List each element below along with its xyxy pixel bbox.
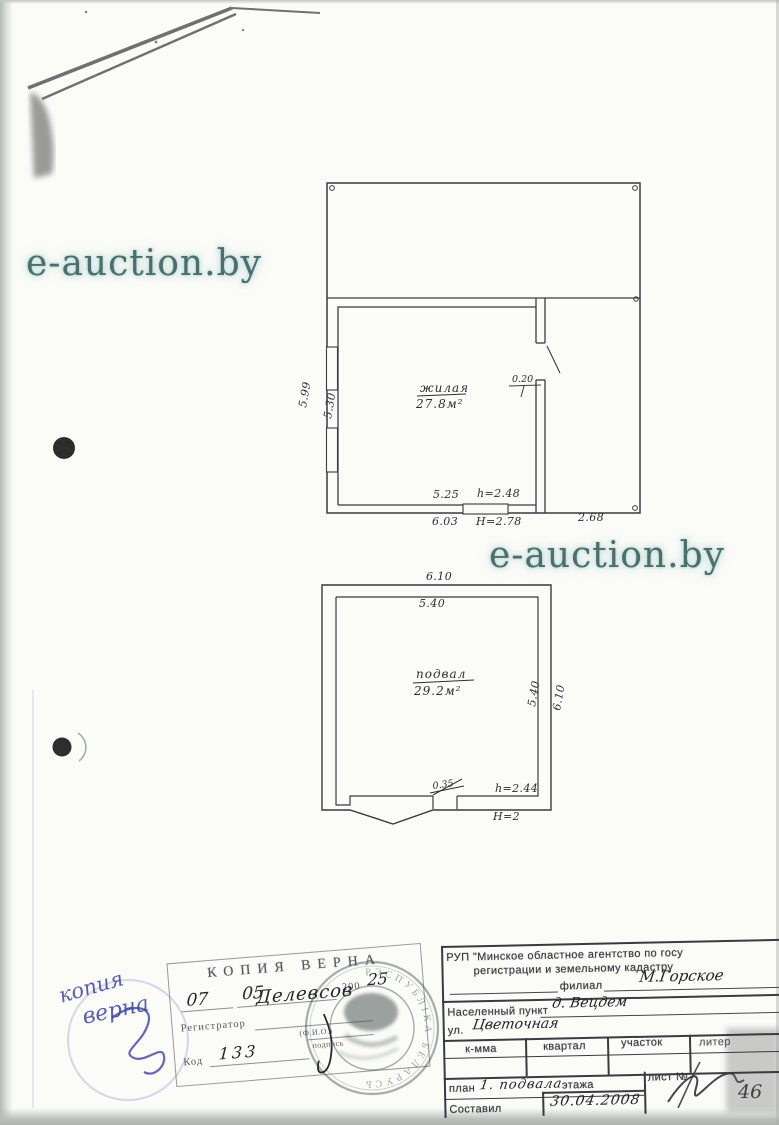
dim-outer-height: H=2.78 bbox=[475, 515, 522, 528]
street-value-handwritten: Цветочная bbox=[471, 1016, 559, 1034]
upper-floor-plan bbox=[327, 183, 641, 514]
dim-outer-height: H=2 bbox=[492, 810, 520, 823]
dim-right-inner: 5.40 bbox=[525, 680, 542, 708]
dim-outer-width: 6.03 bbox=[432, 515, 458, 528]
floor-label: этажа bbox=[562, 1079, 594, 1092]
stamp-day-handwritten: 07 bbox=[186, 989, 209, 1011]
stamp-fio-label: (Ф.И.О.) bbox=[299, 1026, 333, 1038]
stamp-registrar-name-handwritten: Делевсов bbox=[256, 979, 354, 1008]
scanned-document-page: e-auction.by e-auction.by копия верна bbox=[0, 0, 779, 1125]
scan-artifact-lines bbox=[28, 8, 320, 178]
dim-right-outer: 6.10 bbox=[550, 684, 567, 712]
composed-label: Составил bbox=[449, 1103, 501, 1116]
col-header-komma: к-мма bbox=[465, 1043, 497, 1056]
dim-wall: 0.20 bbox=[512, 374, 533, 385]
sheet-label: лист № bbox=[648, 1071, 689, 1084]
dim-right-width: 2.68 bbox=[577, 511, 604, 524]
stamp-code-handwritten: 133 bbox=[218, 1041, 259, 1063]
stamp-sign-label: подпись bbox=[312, 1038, 344, 1049]
room-area-value: 27.8м² bbox=[415, 397, 463, 411]
room-label-podval: подвал bbox=[416, 667, 466, 681]
basement-floor-plan-labels: подвал 29.2м² 6.10 5.40 5.40 6.10 0.35 h… bbox=[413, 570, 567, 823]
registration-info-table: РУП "Минское областное агентство по госу… bbox=[441, 939, 779, 1118]
dim-inner-height: h=2.44 bbox=[495, 782, 538, 795]
street-label: ул. bbox=[448, 1025, 464, 1037]
room-area-value: 29.2м² bbox=[413, 684, 461, 698]
col-header-uchastok: участок bbox=[621, 1036, 663, 1049]
col-header-liter: литер bbox=[699, 1036, 731, 1049]
copy-verna-stamp: КОПИЯ ВЕРНА 07 05 200 25 Делевсов Регист… bbox=[166, 943, 430, 1087]
stamp-code-label: Код bbox=[183, 1056, 204, 1069]
dim-top-outer: 6.10 bbox=[426, 570, 452, 583]
stamp-year-handwritten: 25 bbox=[367, 969, 388, 990]
dim-left-inner: 5.30 bbox=[321, 392, 338, 420]
room-label-zhilaya: жилая bbox=[420, 381, 469, 395]
dim-inner-height: h=2.48 bbox=[477, 487, 520, 500]
col-header-kvartal: квартал bbox=[543, 1040, 586, 1053]
settlement-value-handwritten: д. Вецдем bbox=[551, 994, 628, 1012]
stamp-registrar-label: Регистратор bbox=[180, 1018, 246, 1034]
dim-inner-width: 5.25 bbox=[433, 488, 459, 501]
dim-top-inner: 5.40 bbox=[419, 597, 445, 610]
branch-label: филиал bbox=[560, 980, 603, 993]
branch-value-handwritten: М.Горское bbox=[638, 966, 725, 986]
plan-label: план bbox=[449, 1082, 475, 1095]
dim-left-outer: 5.99 bbox=[296, 381, 313, 409]
composed-date-handwritten: 30.04.2008 bbox=[549, 1092, 642, 1110]
